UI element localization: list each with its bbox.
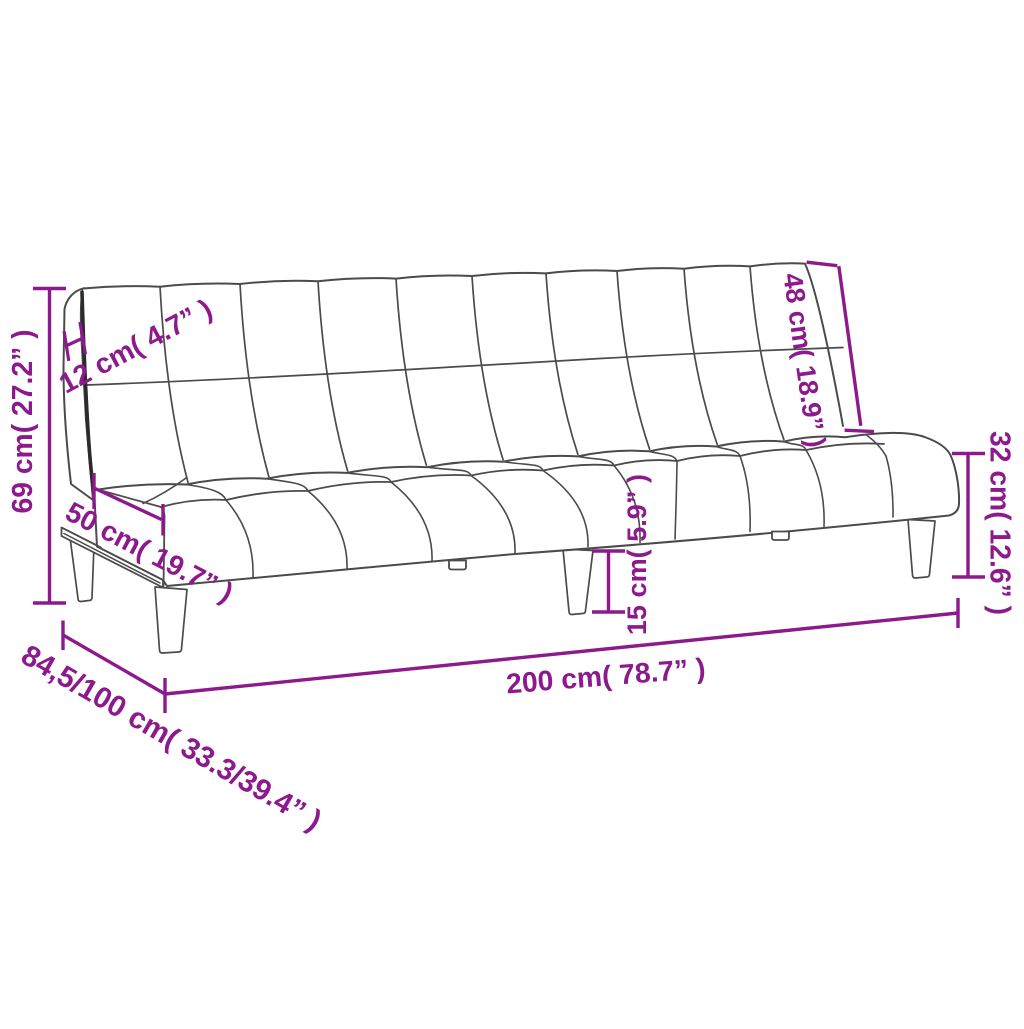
svg-text:32 cm( 12.6” ): 32 cm( 12.6” ) [985,431,1017,615]
svg-text:15 cm( 5.9” ): 15 cm( 5.9” ) [621,474,652,635]
svg-text:69 cm( 27.2” ): 69 cm( 27.2” ) [6,329,38,513]
